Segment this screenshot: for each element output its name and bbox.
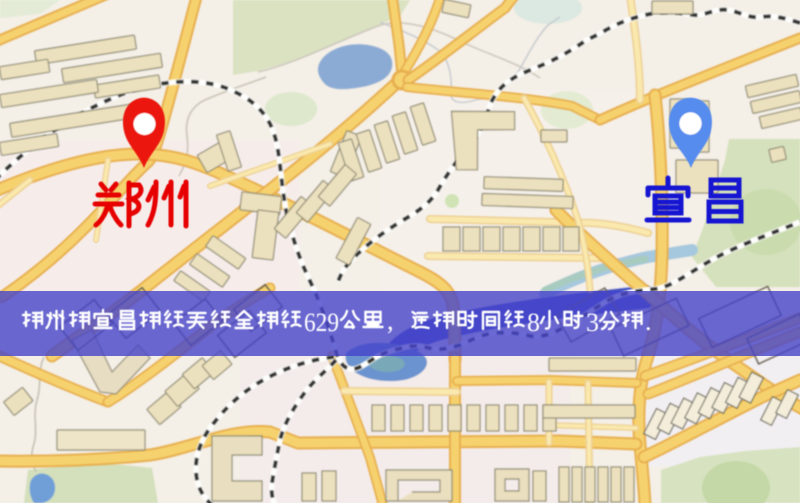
svg-text:.: . — [645, 307, 652, 336]
svg-text:3: 3 — [586, 308, 599, 337]
svg-text:8: 8 — [527, 308, 540, 337]
svg-text:629: 629 — [304, 308, 339, 337]
svg-text:,: , — [387, 306, 394, 335]
